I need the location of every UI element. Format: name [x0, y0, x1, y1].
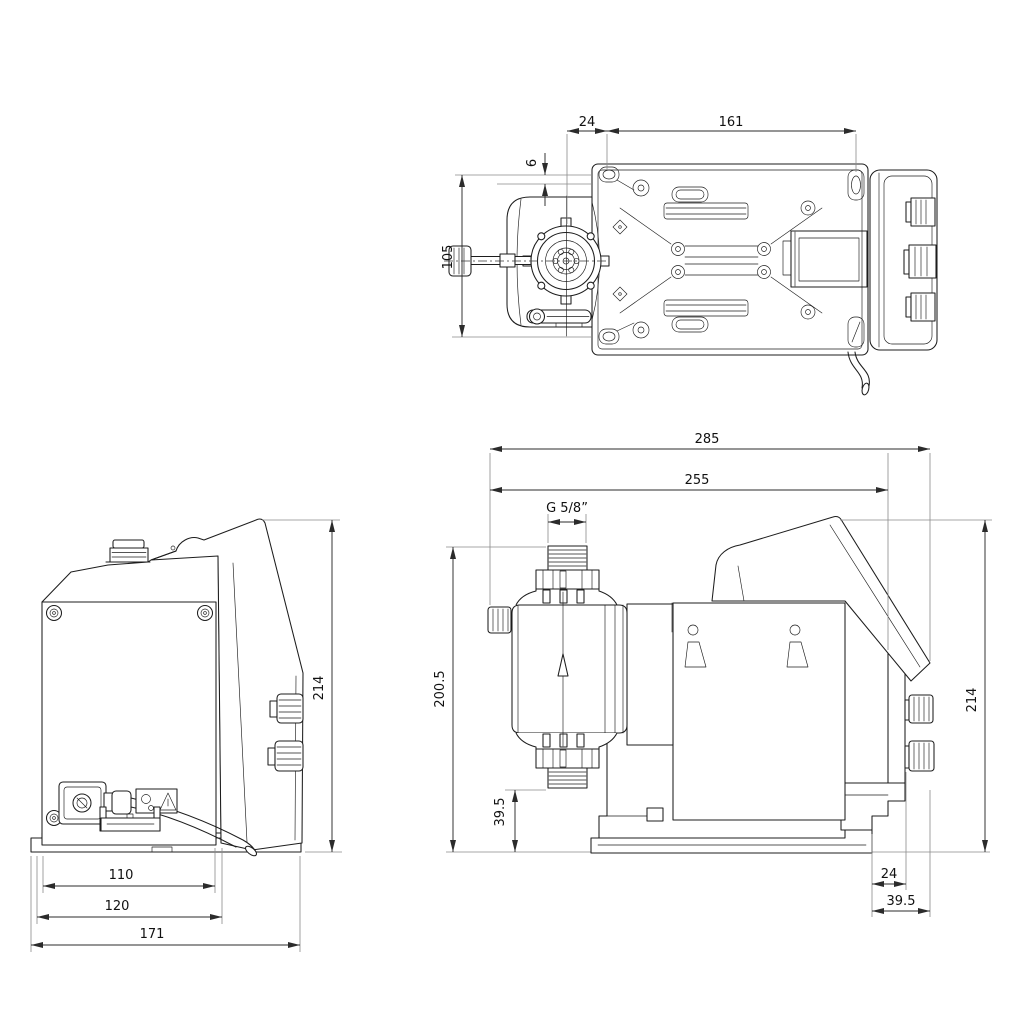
side-dosing-head: [512, 589, 627, 749]
dim-label-side-200-5: 200.5: [433, 670, 448, 707]
dim-label-front-171: 171: [140, 927, 165, 942]
drawing-canvas: 24 161 6 105: [0, 0, 1024, 1024]
technical-drawing: 24 161 6 105: [0, 0, 1024, 1024]
dim-label-top-105: 105: [441, 245, 456, 270]
dim-label-top-24: 24: [579, 115, 596, 130]
dim-label-front-110: 110: [109, 868, 134, 883]
side-view: 285 255 G 5/8” 200.5 39.5 214 24 39.5: [433, 432, 992, 917]
dim-label-front-120: 120: [105, 899, 130, 914]
side-mounting-bracket: [841, 783, 905, 830]
top-signal-cable: [848, 352, 870, 396]
top-view: 24 161 6 105: [441, 115, 937, 396]
dim-label-side-285: 285: [695, 432, 720, 447]
side-discharge-valve: [536, 546, 599, 589]
cable-gland-stubs: [904, 198, 936, 321]
dim-label-top-6: 6: [525, 159, 540, 167]
side-wall-plate: [841, 650, 905, 845]
dim-label-side-39-5-right: 39.5: [887, 894, 916, 909]
dim-label-top-161: 161: [719, 115, 744, 130]
side-suction-valve: [536, 749, 599, 788]
dim-label-side-thread: G 5/8”: [546, 501, 588, 516]
dim-label-side-214: 214: [965, 688, 980, 713]
dim-label-front-214: 214: [312, 676, 327, 701]
front-top-cover: [42, 546, 176, 602]
side-pump-body: [599, 603, 845, 838]
side-cable-glands: [905, 695, 934, 771]
side-baseplate: [591, 830, 872, 853]
dim-label-side-39-5-left: 39.5: [493, 798, 508, 827]
front-discharge-fitting: [106, 540, 150, 562]
top-control-unit: [870, 170, 937, 350]
side-priming-knob: [488, 607, 511, 633]
dim-label-side-255: 255: [685, 473, 710, 488]
dim-label-side-24: 24: [881, 867, 898, 882]
front-view: 214 110 120 171: [31, 519, 342, 952]
top-baseplate: [592, 164, 868, 355]
